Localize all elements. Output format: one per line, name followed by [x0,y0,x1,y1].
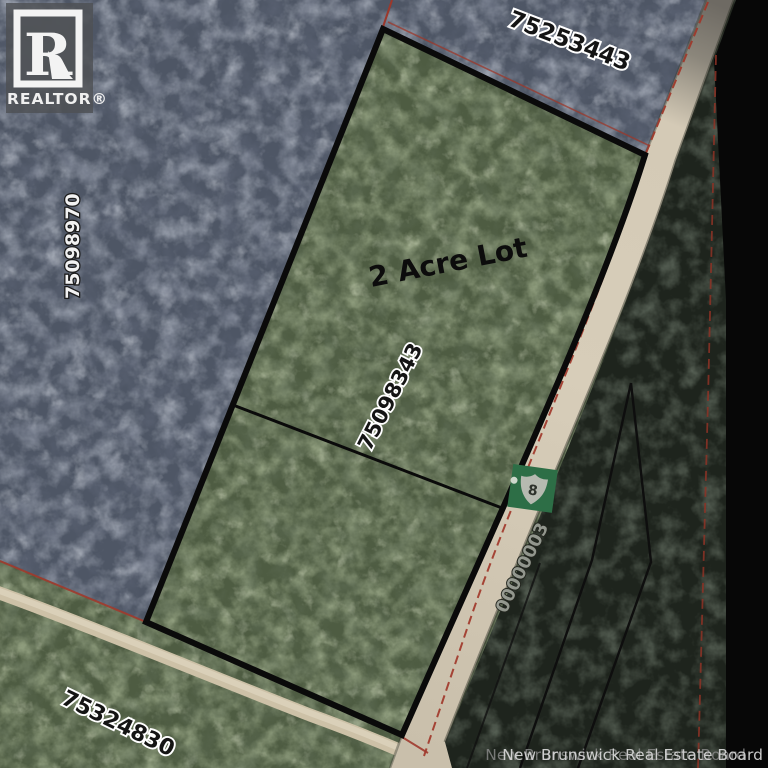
listing-map: 75253443 75098970 75098343 75324830 0000… [0,0,768,768]
route-shield: 8 [507,464,558,513]
property-map-image: 75253443 75098970 75098343 75324830 0000… [0,0,768,768]
parcel-label-west: 75098970 [62,193,84,299]
realtor-logo: R REALTOR® [6,3,108,113]
realtor-logo-wordmark: REALTOR® [7,90,108,108]
watermark-text: New Brunswick Real Estate Board [502,746,763,764]
